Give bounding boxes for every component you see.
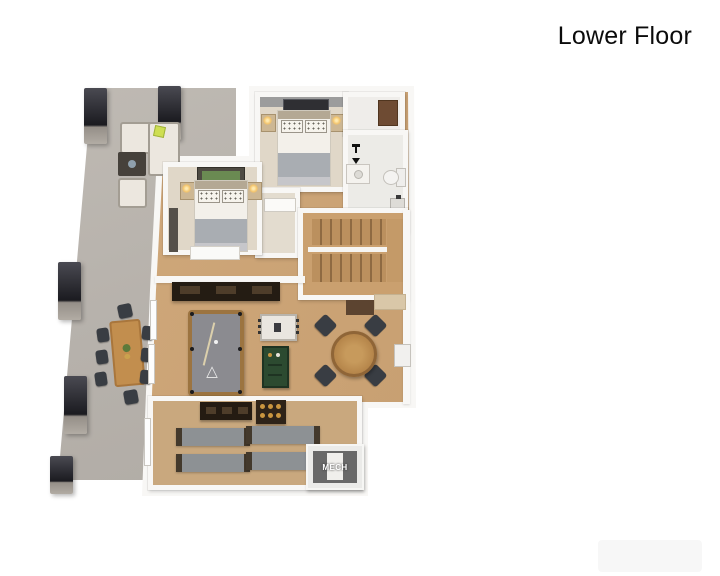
blanket <box>278 153 330 177</box>
stair-railing <box>308 247 392 252</box>
dining-chair <box>117 303 134 320</box>
window <box>148 344 155 384</box>
bed <box>194 180 248 252</box>
bottle <box>260 413 265 418</box>
mech-room: MECH <box>306 444 364 490</box>
bottle <box>268 404 273 409</box>
outdoor-coffee-table <box>118 152 146 176</box>
mini-fridge <box>394 344 411 367</box>
accent-pillow <box>153 125 166 138</box>
stairs-area <box>298 208 408 300</box>
bunk-platform <box>176 428 250 446</box>
closet-cabinet <box>378 100 398 126</box>
structural-post <box>50 456 73 494</box>
structural-post <box>58 262 81 320</box>
bottle <box>276 413 281 418</box>
handle <box>258 325 261 328</box>
stair-flight-upper <box>312 219 386 245</box>
lamp-glow <box>182 184 191 193</box>
bar-tray <box>252 286 272 294</box>
cabinet-shelf <box>268 374 282 376</box>
cue-ball <box>214 340 218 344</box>
bar-tray <box>216 286 236 294</box>
window <box>150 300 157 340</box>
shower-icon <box>355 146 357 153</box>
foot-bench <box>278 177 330 185</box>
dresser <box>264 198 296 212</box>
dart-cabinet <box>262 346 289 388</box>
console-item <box>238 407 248 414</box>
table-decor <box>128 160 136 168</box>
stair-flight-lower <box>312 254 386 282</box>
cabinet-item <box>276 353 280 357</box>
bottle <box>260 404 265 409</box>
closet-door <box>190 246 240 260</box>
bottle <box>276 404 281 409</box>
shower-icon-head <box>352 144 360 147</box>
game-table-center <box>274 323 281 332</box>
bed <box>277 110 331 186</box>
cue-stick <box>203 322 216 365</box>
poker-table <box>331 331 377 377</box>
pillow <box>305 120 327 133</box>
lamp-glow <box>249 184 258 193</box>
media-console <box>200 402 252 420</box>
pocket <box>238 390 242 394</box>
centerpiece <box>122 344 131 353</box>
console-item <box>206 407 216 414</box>
headboard <box>278 111 330 119</box>
pocket <box>238 347 242 351</box>
mech-room-label: MECH <box>313 451 357 483</box>
cabinet-shelf <box>268 364 282 366</box>
window <box>144 418 151 466</box>
pool-table: △ <box>188 310 244 396</box>
bunk-platform <box>176 454 250 472</box>
lamp-glow <box>332 116 341 125</box>
dining-chair <box>95 349 109 365</box>
artwork-image <box>202 171 240 180</box>
shelf-unit <box>256 400 286 424</box>
cabinet-item <box>268 353 272 357</box>
headboard <box>195 181 247 189</box>
toilet-bowl <box>383 170 399 185</box>
pocket <box>238 312 242 316</box>
watermark <box>598 540 702 572</box>
handle <box>258 319 261 322</box>
handle <box>296 331 299 334</box>
console-item <box>222 407 232 414</box>
pocket <box>190 390 194 394</box>
fixture-icon <box>352 158 360 164</box>
floorplan-canvas: Lower Floor <box>0 0 720 576</box>
handle <box>258 331 261 334</box>
wet-bar-counter <box>374 294 406 310</box>
ball-rack-triangle: △ <box>200 362 224 382</box>
structural-post <box>64 376 87 434</box>
handle <box>296 325 299 328</box>
pillow <box>198 190 220 203</box>
page-title: Lower Floor <box>558 22 692 51</box>
blanket <box>195 219 247 243</box>
dresser-media <box>169 208 178 252</box>
faucet <box>396 195 401 199</box>
pillow <box>281 120 303 133</box>
bar-tray <box>180 286 200 294</box>
wet-bar-cabinet <box>346 300 374 315</box>
dining-chair <box>123 389 139 405</box>
bar-console <box>172 282 280 301</box>
lamp-glow <box>263 116 272 125</box>
structural-post <box>84 88 107 144</box>
dining-chair <box>96 327 110 343</box>
pocket <box>190 347 194 351</box>
game-table <box>260 314 297 341</box>
dish <box>124 354 130 360</box>
dining-chair <box>94 371 108 387</box>
bottle <box>268 413 273 418</box>
outdoor-armchair <box>118 178 147 208</box>
pillow <box>222 190 244 203</box>
vanity <box>346 164 370 184</box>
pocket <box>190 312 194 316</box>
stair-landing <box>387 219 403 282</box>
sink-basin <box>354 170 363 179</box>
handle <box>296 319 299 322</box>
bunk-platform <box>246 426 320 444</box>
